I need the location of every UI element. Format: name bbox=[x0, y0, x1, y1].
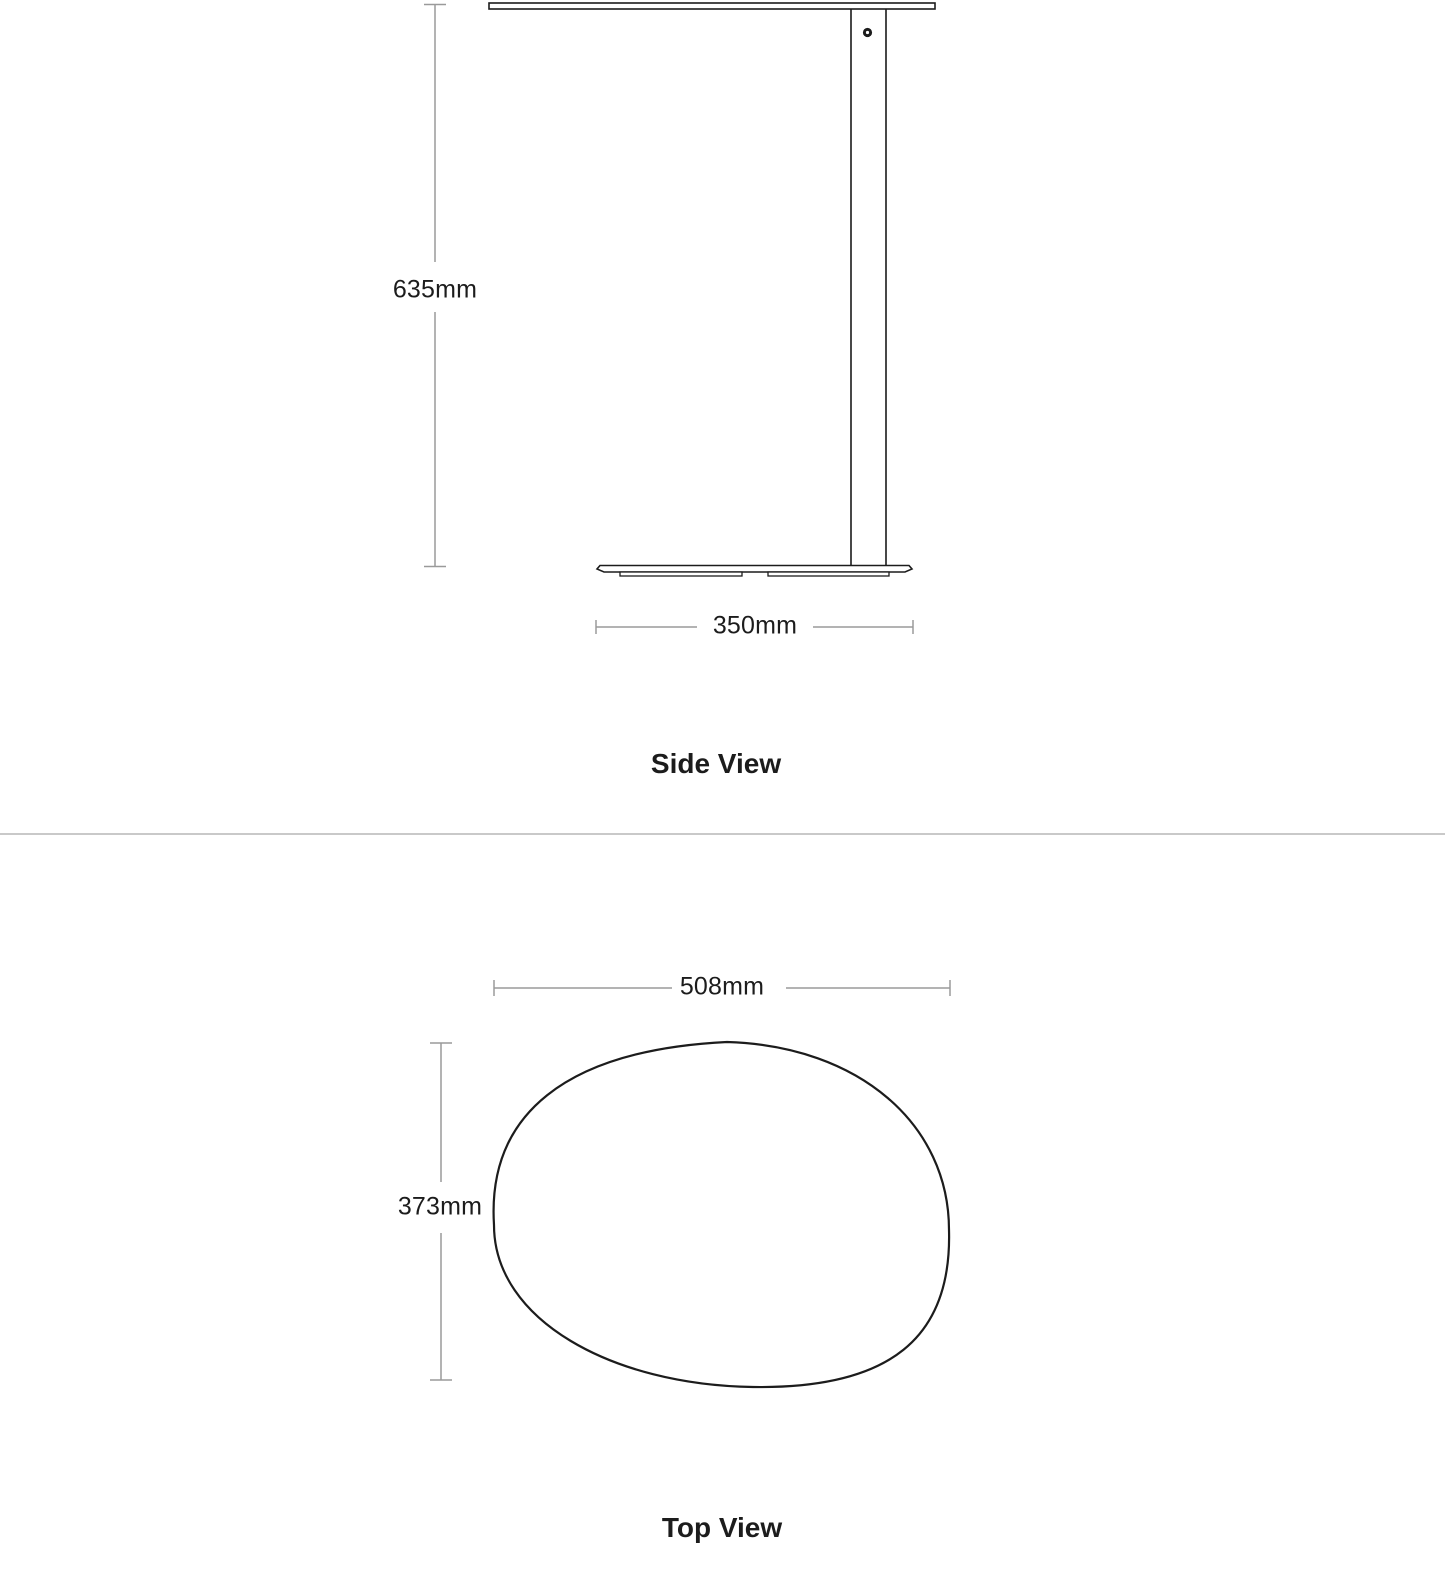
base-foot-left bbox=[620, 572, 742, 576]
furniture-dimension-drawing: 635mm 350mm Side View 508mm 373mm Top Vi… bbox=[0, 0, 1445, 1589]
side-view-leg bbox=[851, 9, 886, 566]
base-foot-right bbox=[768, 572, 889, 576]
top-width-dimension-label: 508mm bbox=[680, 973, 764, 1002]
top-view-tabletop-outline bbox=[494, 1042, 950, 1387]
top-view-title: Top View bbox=[662, 1512, 782, 1544]
side-view-base-plate bbox=[597, 566, 912, 573]
top-depth-dimension-label: 373mm bbox=[398, 1193, 482, 1222]
drawing-layer bbox=[0, 0, 1445, 1589]
side-height-dimension-label: 635mm bbox=[393, 276, 477, 305]
side-width-dimension-label: 350mm bbox=[713, 612, 797, 641]
side-view-drawing bbox=[489, 3, 935, 576]
leg-screw-center bbox=[866, 31, 869, 34]
side-view-title: Side View bbox=[651, 748, 781, 780]
side-view-tabletop bbox=[489, 3, 935, 9]
